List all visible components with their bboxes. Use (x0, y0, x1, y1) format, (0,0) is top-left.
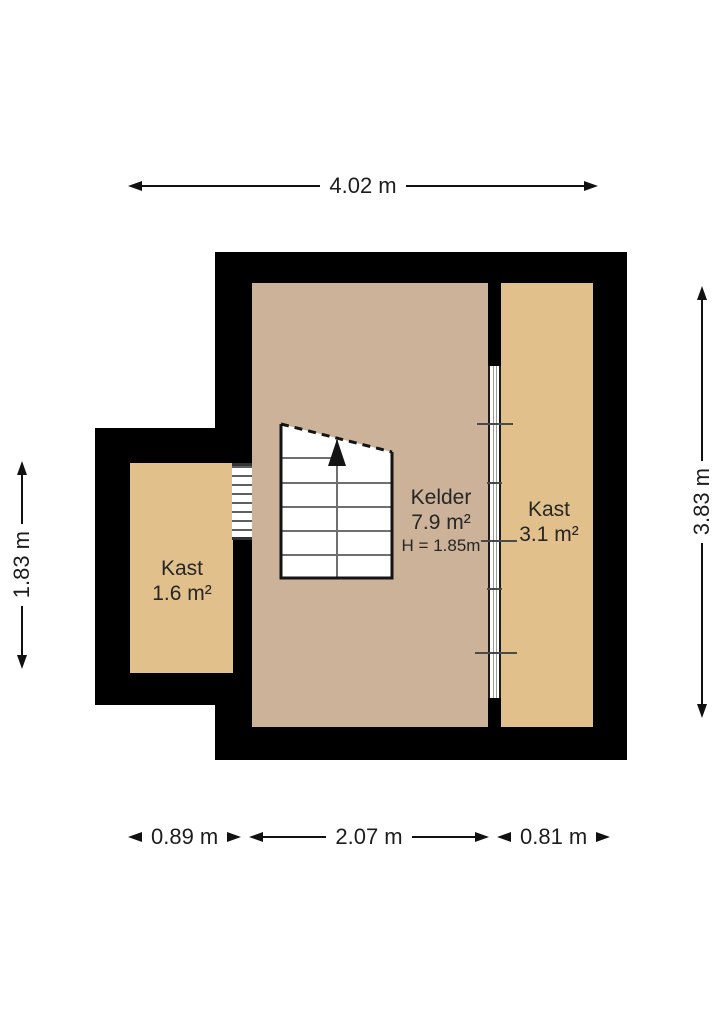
room-name: Kast (152, 557, 212, 582)
partition-tick (481, 540, 517, 542)
dimension-line (406, 185, 584, 187)
arrowhead-left-icon (497, 832, 511, 842)
partition-tick (475, 652, 517, 654)
stairs-icon (275, 415, 400, 585)
arrowhead-down-icon (17, 655, 27, 669)
room-area: 1.6 m² (152, 582, 212, 607)
dimension-value: 0.81 m (520, 824, 587, 850)
dimension-line (21, 475, 23, 524)
dimension-value: 3.83 m (689, 468, 715, 535)
opening-hatch (232, 463, 252, 540)
dimension-line (701, 543, 703, 704)
room-height-note: H = 1.85m (402, 536, 481, 556)
dimension-bottom-right: 0.81 m (497, 825, 595, 849)
room-name: Kelder (402, 486, 481, 511)
arrowhead-left-icon (128, 832, 142, 842)
dimension-line (142, 185, 320, 187)
kast-left-label: Kast 1.6 m² (152, 557, 212, 607)
arrowhead-right-icon (596, 832, 610, 842)
dimension-bottom-center: 2.07 m (249, 825, 489, 849)
partition-tick (487, 482, 502, 484)
kast-right-label: Kast 3.1 m² (519, 498, 579, 548)
arrowhead-right-icon (584, 181, 598, 191)
dimension-value: 0.89 m (151, 824, 218, 850)
partition-tick (487, 588, 502, 590)
dimension-top: 4.02 m (128, 174, 598, 198)
dimension-value: 1.83 m (9, 531, 35, 598)
arrowhead-down-icon (697, 704, 707, 718)
partition-tick (477, 423, 513, 425)
arrowhead-left-icon (128, 181, 142, 191)
room-name: Kast (519, 498, 579, 523)
dimension-line (21, 606, 23, 655)
dimension-left: 1.83 m (9, 461, 35, 669)
arrowhead-up-icon (17, 461, 27, 475)
dimension-right: 3.83 m (689, 286, 715, 718)
partition-bottom-stub (488, 698, 501, 727)
dimension-value: 4.02 m (329, 173, 396, 199)
arrowhead-right-icon (227, 832, 241, 842)
dimension-bottom-left: 0.89 m (128, 825, 233, 849)
dimension-line (263, 836, 326, 838)
arrowhead-up-icon (697, 286, 707, 300)
arrowhead-right-icon (475, 832, 489, 842)
dimension-line (412, 836, 475, 838)
room-area: 7.9 m² (402, 511, 481, 536)
dimension-value: 2.07 m (335, 824, 402, 850)
room-area: 3.1 m² (519, 523, 579, 548)
kelder-label: Kelder 7.9 m² H = 1.85m (402, 486, 481, 556)
arrowhead-left-icon (249, 832, 263, 842)
dimension-line (701, 300, 703, 461)
partition-top-stub (488, 283, 501, 366)
floor-plan: Kelder 7.9 m² H = 1.85m Kast 3.1 m² Kast… (0, 0, 724, 1024)
